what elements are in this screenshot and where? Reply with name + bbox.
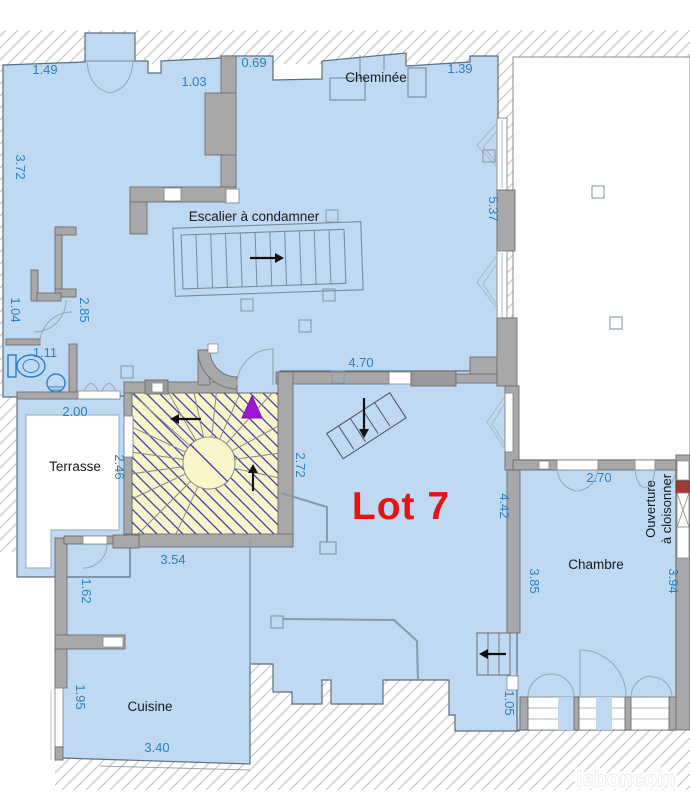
svg-text:1.03: 1.03 [181, 74, 206, 89]
svg-text:1.39: 1.39 [447, 61, 472, 76]
svg-text:1.11: 1.11 [33, 345, 57, 360]
svg-text:Terrasse: Terrasse [49, 459, 101, 474]
svg-text:1.95: 1.95 [73, 684, 88, 709]
svg-text:Cheminée: Cheminée [345, 70, 407, 85]
svg-text:4.42: 4.42 [497, 493, 512, 518]
svg-text:1.04: 1.04 [8, 297, 23, 322]
svg-text:2.70: 2.70 [586, 470, 611, 485]
svg-text:Chambre: Chambre [568, 557, 624, 572]
svg-text:3.40: 3.40 [144, 740, 169, 755]
svg-text:2.85: 2.85 [77, 297, 92, 322]
svg-text:2.00: 2.00 [62, 404, 87, 419]
svg-text:0.69: 0.69 [241, 55, 266, 70]
svg-text:Cuisine: Cuisine [127, 699, 172, 714]
svg-text:Escalier à condamner: Escalier à condamner [189, 209, 320, 224]
svg-text:1.62: 1.62 [79, 578, 94, 603]
svg-text:4.70: 4.70 [348, 355, 373, 370]
svg-text:3.54: 3.54 [160, 552, 185, 567]
svg-text:1.05: 1.05 [502, 690, 517, 715]
svg-text:1.49: 1.49 [32, 62, 57, 77]
svg-text:Ouverture: Ouverture [643, 480, 658, 538]
svg-text:à cloisonner: à cloisonner [659, 473, 674, 544]
svg-text:3.72: 3.72 [13, 154, 28, 179]
svg-text:3.85: 3.85 [527, 568, 542, 593]
svg-text:Lot 7: Lot 7 [352, 485, 450, 528]
svg-text:leboncoin: leboncoin [576, 768, 675, 791]
svg-text:2.72: 2.72 [293, 452, 308, 477]
svg-text:3.94: 3.94 [666, 568, 681, 593]
svg-text:5.37: 5.37 [486, 196, 501, 221]
svg-text:2.46: 2.46 [112, 454, 127, 479]
